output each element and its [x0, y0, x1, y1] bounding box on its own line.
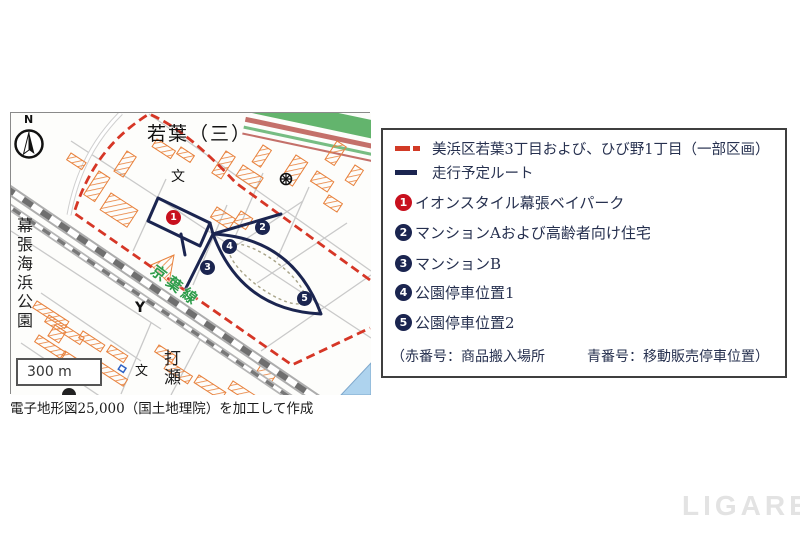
compass-icon — [16, 131, 43, 158]
park-label: 幕張海浜公園 — [15, 217, 31, 331]
school-symbol: 文 — [171, 170, 185, 184]
topographic-map: N 若葉（三） 文 京葉線 幕張海浜公園 打瀬 文 Y 300 m 1 2 3 … — [10, 112, 370, 394]
legend-route-label: 走行予定ルート — [432, 162, 534, 183]
gov-office-symbol-icon — [281, 174, 292, 185]
legend-item-5: 5 公園停車位置2 — [395, 312, 515, 333]
legend-boundary-row: 美浜区若葉3丁目および、ひび野1丁目（一部区画） — [395, 138, 769, 159]
legend-item-2-label: マンションAおよび高齢者向け住宅 — [415, 222, 651, 243]
map-marker-3: 3 — [200, 260, 215, 275]
ligare-watermark: LIGARE — [682, 490, 800, 522]
legend-panel: 美浜区若葉3丁目および、ひび野1丁目（一部区画） 走行予定ルート 1 イオンスタ… — [381, 128, 787, 378]
marker-1-icon: 1 — [395, 194, 412, 211]
fire-station-symbol: Y — [135, 301, 145, 315]
map-marker-5: 5 — [297, 291, 312, 306]
marker-5-icon: 5 — [395, 314, 412, 331]
legend-item-1-label: イオンスタイル幕張ベイパーク — [415, 192, 624, 213]
map-marker-1: 1 — [166, 210, 181, 225]
legend-item-4: 4 公園停車位置1 — [395, 282, 515, 303]
town-label: 打瀬 — [161, 349, 178, 387]
legend-item-5-label: 公園停車位置2 — [415, 312, 515, 333]
compass-n-label: N — [24, 114, 33, 125]
red-dashed-line-icon — [395, 146, 425, 151]
scale-label: 300 m — [27, 365, 72, 379]
marker-2-icon: 2 — [395, 224, 412, 241]
legend-boundary-label: 美浜区若葉3丁目および、ひび野1丁目（一部区画） — [432, 138, 769, 159]
navy-line-icon — [395, 170, 425, 175]
district-label: 若葉（三） — [147, 125, 252, 144]
legend-item-4-label: 公園停車位置1 — [415, 282, 515, 303]
marker-3-icon: 3 — [395, 255, 412, 272]
legend-note: （赤番号：商品搬入場所 青番号：移動販売停車位置） — [391, 346, 769, 366]
map-marker-4: 4 — [222, 239, 237, 254]
marker-4-icon: 4 — [395, 284, 412, 301]
legend-item-2: 2 マンションAおよび高齢者向け住宅 — [395, 222, 651, 243]
school-symbol: 文 — [135, 365, 148, 378]
legend-item-1: 1 イオンスタイル幕張ベイパーク — [395, 192, 624, 213]
map-source-caption: 電子地形図25,000（国土地理院）を加工して作成 — [10, 397, 313, 417]
map-canvas — [11, 113, 371, 395]
map-marker-2: 2 — [255, 220, 270, 235]
legend-item-3: 3 マンションB — [395, 253, 501, 274]
legend-route-row: 走行予定ルート — [395, 162, 534, 183]
legend-item-3-label: マンションB — [415, 253, 501, 274]
